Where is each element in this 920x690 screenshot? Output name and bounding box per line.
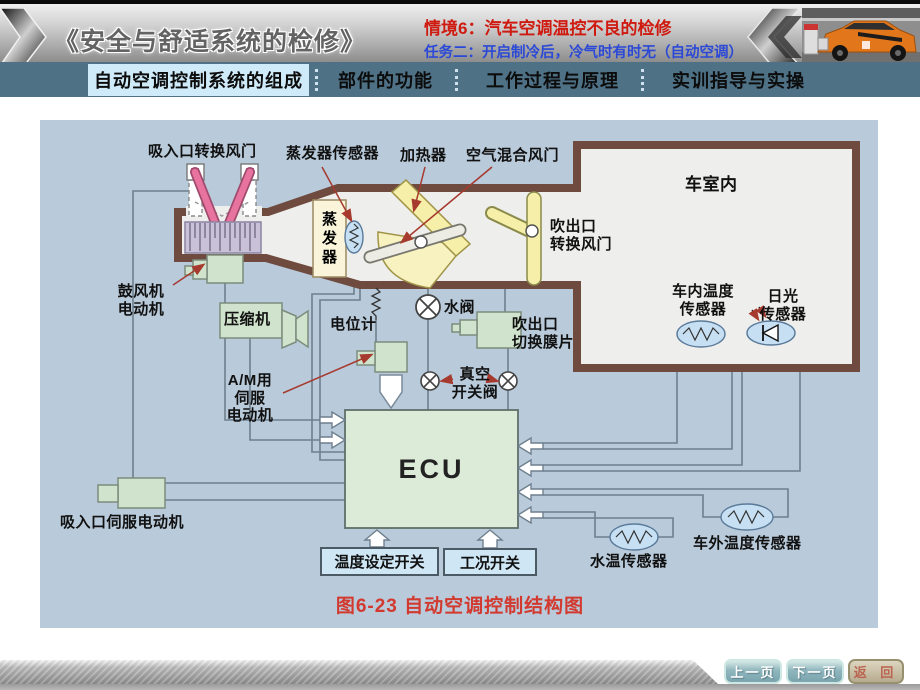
label-potentiometer: 电位计 bbox=[330, 316, 377, 334]
label-am-servo: A/M用 伺服 电动机 bbox=[212, 372, 288, 425]
outlet-diaphragm-actuator bbox=[452, 312, 521, 348]
label-outlet-diaphragm: 吹出口 切换膜片 bbox=[512, 316, 574, 351]
right-chevron-decoration bbox=[742, 8, 802, 66]
intake-servo-motor bbox=[98, 478, 165, 508]
tab-separator bbox=[315, 69, 318, 91]
label-water-valve: 水阀 bbox=[444, 299, 475, 317]
label-outlet-damper: 吹出口 转换风门 bbox=[550, 218, 612, 253]
tab-component-functions[interactable]: 部件的功能 bbox=[332, 64, 439, 96]
label-intake-servo: 吸入口伺服电动机 bbox=[60, 514, 184, 532]
label-sun-sensor: 日光 传感器 bbox=[740, 288, 826, 323]
water-valve bbox=[416, 295, 440, 319]
task-subtitle: 任务二：开启制冷后，冷气时有时无（自动空调） bbox=[424, 41, 743, 62]
label-evaporator-sensor: 蒸发器传感器 bbox=[286, 145, 379, 163]
am-servo-motor bbox=[357, 342, 407, 408]
figure-caption: 图6-23 自动空调控制结构图 bbox=[270, 591, 650, 618]
header-banner: 《安全与舒适系统的检修》 情境6：汽车空调温控不良的检修 任务二：开启制冷后，冷… bbox=[0, 4, 920, 62]
course-title: 《安全与舒适系统的检修》 bbox=[54, 22, 366, 58]
label-blower-motor: 鼓风机 电动机 bbox=[100, 283, 182, 318]
back-button[interactable]: 返 回 bbox=[848, 659, 904, 684]
evaporator-sensor bbox=[345, 221, 363, 253]
label-evaporator: 蒸 发 器 bbox=[313, 202, 346, 277]
water-temp-sensor bbox=[610, 524, 658, 550]
tab-separator bbox=[641, 69, 644, 91]
next-page-button[interactable]: 下一页 bbox=[786, 659, 844, 684]
situation-subtitle: 情境6：汽车空调温控不良的检修 bbox=[424, 14, 671, 39]
label-cabin: 车室内 bbox=[685, 175, 738, 195]
outside-temp-sensor bbox=[721, 504, 773, 530]
cabin-temp-sensor bbox=[677, 321, 725, 347]
slide: { "header": { "title": "《安全与舒适系统的检修》", "… bbox=[0, 0, 920, 690]
label-vacuum-valve: 真空 开关阀 bbox=[451, 366, 499, 401]
label-outside-temp-sensor: 车外温度传感器 bbox=[693, 535, 802, 553]
label-ecu: ECU bbox=[345, 410, 518, 528]
label-intake-damper: 吸入口转换风门 bbox=[148, 143, 257, 161]
label-compressor: 压缩机 bbox=[224, 311, 271, 329]
label-air-mix-damper: 空气混合风门 bbox=[466, 147, 559, 165]
tab-system-composition[interactable]: 自动空调控制系统的组成 bbox=[88, 64, 309, 96]
label-cabin-temp-sensor: 车内温度 传感器 bbox=[662, 283, 744, 318]
blower-fan bbox=[185, 222, 261, 253]
hvac-structure-diagram: 吸入口转换风门 蒸发器传感器 加热器 空气混合风门 车室内 鼓风机 电动机 压缩… bbox=[40, 120, 878, 628]
footer-bottom-strip bbox=[0, 684, 920, 690]
left-chevron-decoration bbox=[0, 8, 48, 66]
label-water-temp-sensor: 水温传感器 bbox=[590, 553, 668, 571]
prev-page-button[interactable]: 上一页 bbox=[724, 659, 782, 684]
tab-working-principle[interactable]: 工作过程与原理 bbox=[480, 64, 625, 96]
section-tabbar: 自动空调控制系统的组成 部件的功能 工作过程与原理 实训指导与实操 bbox=[0, 62, 920, 97]
mode-switch-box: 工况开关 bbox=[443, 548, 537, 576]
label-heater: 加热器 bbox=[400, 147, 447, 165]
temp-set-switch-box: 温度设定开关 bbox=[320, 547, 439, 576]
tab-practical-training[interactable]: 实训指导与实操 bbox=[666, 64, 811, 96]
crash-test-car-photo bbox=[802, 8, 920, 66]
footer-stripe-band bbox=[0, 660, 718, 684]
tab-separator bbox=[455, 69, 458, 91]
